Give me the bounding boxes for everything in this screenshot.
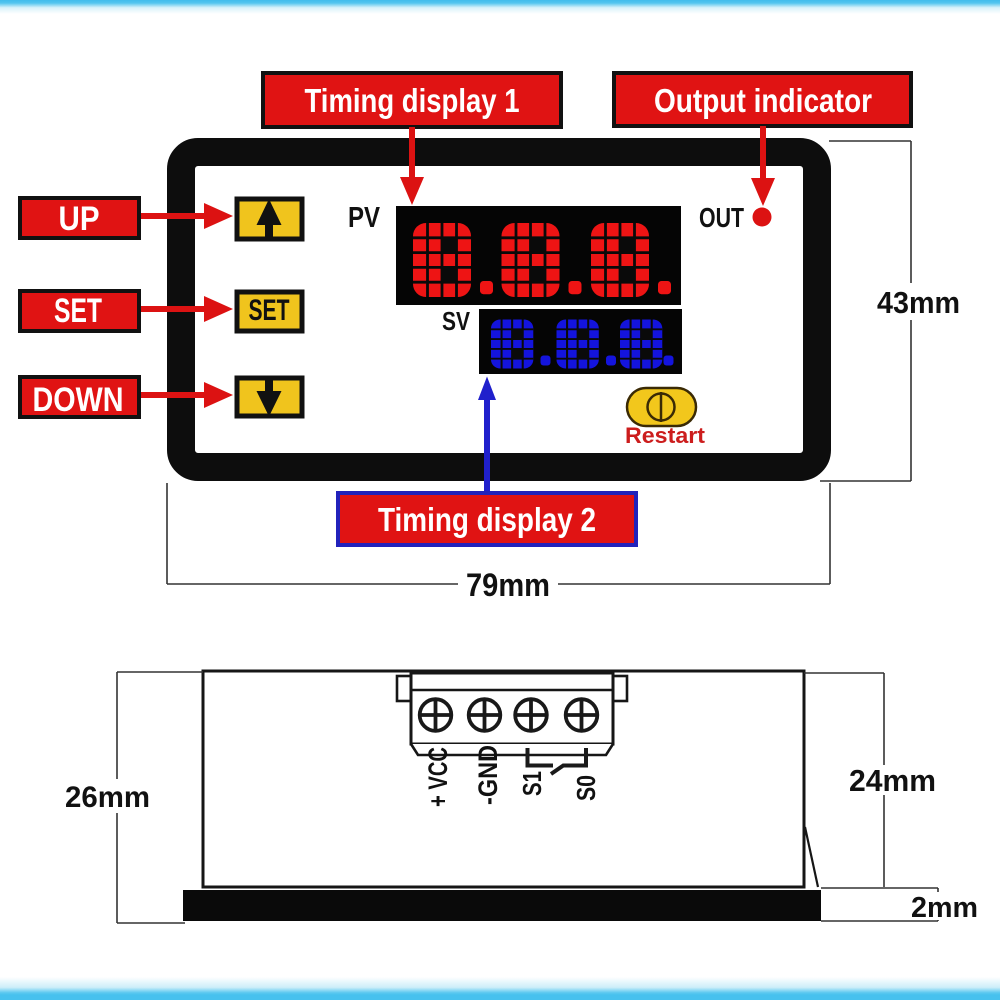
svg-text:43mm: 43mm (877, 285, 960, 320)
svg-text:79mm: 79mm (466, 567, 550, 603)
svg-text:PV: PV (348, 202, 381, 234)
svg-text:SV: SV (442, 306, 471, 336)
svg-text:S0: S0 (571, 775, 601, 801)
svg-text:Timing display 1: Timing display 1 (305, 82, 520, 119)
svg-text:OUT: OUT (699, 202, 744, 233)
svg-text:Output indicator: Output indicator (654, 82, 872, 119)
svg-text:SET: SET (249, 294, 290, 327)
svg-text:-GND: -GND (473, 745, 503, 805)
svg-text:24mm: 24mm (849, 763, 936, 798)
svg-text:26mm: 26mm (65, 781, 150, 814)
svg-text:2mm: 2mm (911, 892, 978, 924)
svg-text:DOWN: DOWN (33, 381, 124, 419)
svg-text:+ VCC: + VCC (423, 747, 453, 807)
svg-text:UP: UP (59, 200, 100, 238)
svg-text:Timing display 2: Timing display 2 (378, 501, 596, 538)
svg-text:SET: SET (54, 292, 102, 330)
svg-text:S1: S1 (517, 771, 547, 796)
svg-text:Restart: Restart (625, 423, 706, 448)
